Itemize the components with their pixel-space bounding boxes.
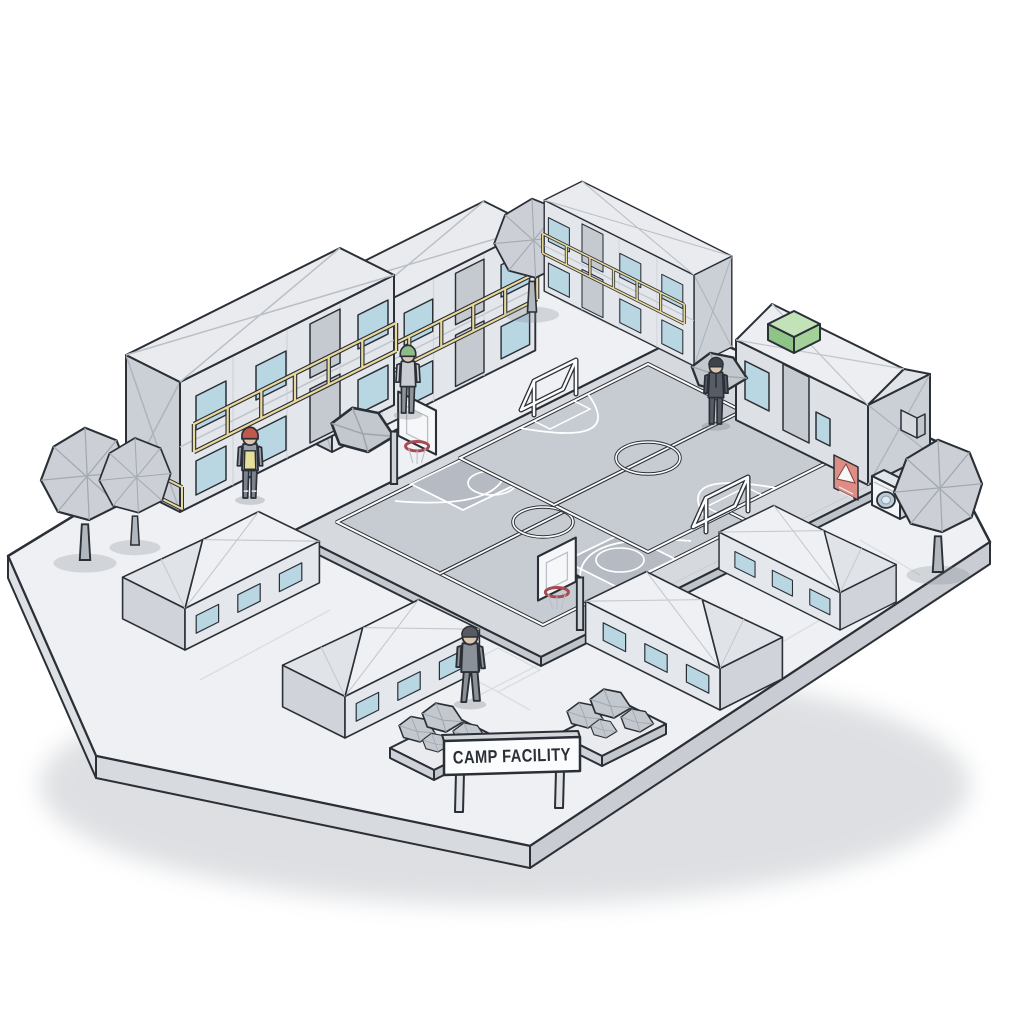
leg	[251, 470, 257, 498]
leg	[401, 387, 407, 413]
washer-door-glass	[882, 496, 891, 504]
sign-leg	[455, 772, 464, 812]
torso	[461, 643, 479, 672]
arm	[396, 364, 400, 383]
leg	[243, 470, 249, 498]
arm	[724, 375, 728, 394]
door	[783, 364, 809, 443]
hair	[462, 626, 478, 637]
person-shadow	[394, 411, 423, 420]
hair	[709, 357, 723, 366]
hard-hat-red	[242, 427, 258, 439]
person-shadow	[235, 496, 265, 505]
safety-vest	[244, 451, 256, 469]
camp-facility-illustration: CAMP FACILITY	[0, 0, 1024, 1024]
leg	[717, 398, 723, 424]
hard-hat-green	[400, 345, 415, 356]
leg	[409, 387, 415, 413]
torso	[400, 361, 415, 386]
person-shadow	[454, 700, 487, 710]
leg	[709, 398, 715, 424]
sign-text: CAMP FACILITY	[453, 744, 572, 767]
person-shadow	[702, 422, 731, 431]
arm	[258, 446, 263, 466]
arm	[456, 646, 461, 667]
arm	[237, 446, 242, 466]
leg	[471, 672, 480, 701]
sign-leg	[555, 770, 564, 808]
arm	[416, 364, 420, 383]
arm	[704, 375, 708, 394]
isometric-scene: CAMP FACILITY	[0, 0, 1024, 1024]
